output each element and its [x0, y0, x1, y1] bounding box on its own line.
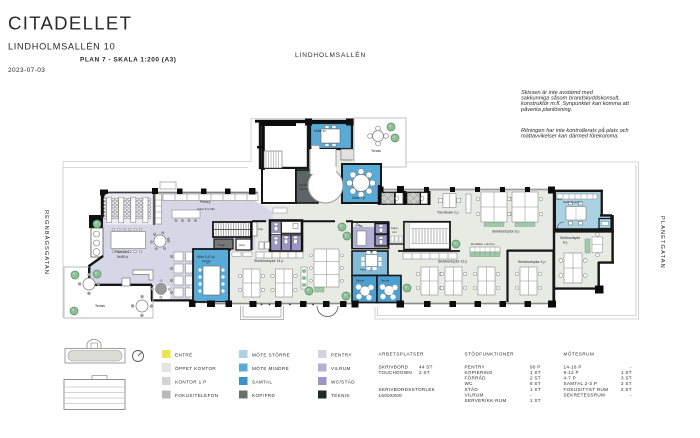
svg-text:Skrivbordsytor 8 p: Skrivbordsytor 8 p: [492, 230, 519, 234]
svg-text:KONTOR 1 P: KONTOR 1 P: [175, 380, 207, 385]
svg-text:mättavvikelser kan därmed före: mättavvikelser kan därmed förekomma.: [521, 134, 619, 140]
svg-text:Vilrum: Vilrum: [355, 224, 362, 228]
svg-text:8 p: 8 p: [563, 241, 568, 245]
svg-text:FOKUS/TYST RUM: FOKUS/TYST RUM: [564, 387, 609, 392]
svg-text:PENTRY: PENTRY: [465, 365, 485, 370]
svg-text:SAMTAL: SAMTAL: [252, 380, 272, 385]
svg-text:Fokus: Fokus: [556, 198, 563, 201]
svg-text:KK-rum: KK-rum: [299, 187, 309, 191]
svg-text:MÖTE STÖRRE: MÖTE STÖRRE: [252, 352, 290, 358]
svg-text:Skrivbordsytor 4 p: Skrivbordsytor 4 p: [518, 260, 545, 264]
svg-text:1 ST: 1 ST: [530, 370, 541, 375]
svg-text:VILRUM: VILRUM: [331, 366, 351, 371]
svg-text:Kop.: Kop.: [258, 227, 264, 231]
svg-text:FÖRRÅD: FÖRRÅD: [465, 375, 487, 381]
svg-text:14-16 P: 14-16 P: [564, 365, 582, 370]
svg-text:Sekretessrum: Sekretessrum: [563, 200, 582, 204]
svg-text:ÖPPET KONTOR: ÖPPET KONTOR: [175, 365, 216, 371]
svg-text:Terass: Terass: [371, 149, 381, 153]
svg-text:Skrivbordsytor 12 p: Skrivbordsytor 12 p: [438, 260, 467, 264]
svg-text:Möte 8-10 p/: Möte 8-10 p/: [197, 255, 215, 259]
svg-text:STÖDFUNKTIONER: STÖDFUNKTIONER: [465, 351, 515, 357]
svg-text:rum: rum: [392, 230, 397, 234]
svg-text:TOUCHDOWN: TOUCHDOWN: [379, 370, 413, 375]
svg-text:MÖTE MINDRE: MÖTE MINDRE: [252, 365, 289, 371]
svg-text:PLAN 7 - SKALA 1:200 (A3): PLAN 7 - SKALA 1:200 (A3): [80, 57, 176, 64]
svg-text:Möte 7 p: Möte 7 p: [352, 196, 365, 200]
svg-text:2 ST: 2 ST: [419, 370, 430, 375]
svg-text:-: -: [630, 365, 632, 370]
svg-text:Terass: Terass: [95, 304, 105, 308]
svg-text:8-12 P: 8-12 P: [564, 370, 579, 375]
svg-text:LINDHOLMSALLÉN 10: LINDHOLMSALLÉN 10: [8, 42, 115, 52]
svg-text:5x/90 p: 5x/90 p: [117, 255, 128, 259]
svg-text:-: -: [530, 392, 532, 397]
svg-text:90 P: 90 P: [530, 365, 541, 370]
svg-text:STÄD: STÄD: [465, 386, 479, 392]
svg-text:1600X800: 1600X800: [379, 393, 402, 398]
svg-text:2 ST: 2 ST: [621, 381, 632, 386]
svg-text:ARBETSPLATSER: ARBETSPLATSER: [379, 352, 425, 357]
svg-text:FOKUS/TELEFON: FOKUS/TELEFON: [175, 393, 219, 398]
svg-text:3 ST: 3 ST: [621, 376, 632, 381]
svg-text:WC: WC: [465, 381, 474, 386]
svg-text:Förråd/: Förråd/: [299, 183, 308, 187]
svg-text:SKRIVBORD: SKRIVBORD: [379, 365, 409, 370]
svg-text:LINDHOLMSALLÉN: LINDHOLMSALLÉN: [295, 50, 366, 59]
svg-text:6 ST: 6 ST: [530, 381, 541, 386]
svg-text:Pentry: Pentry: [200, 200, 211, 204]
svg-text:4-7 P: 4-7 P: [564, 376, 576, 381]
svg-text:påverka planlösning.: påverka planlösning.: [520, 106, 572, 113]
svg-text:REGNBÅGSGATAN: REGNBÅGSGATAN: [43, 210, 50, 275]
svg-text:-: -: [630, 392, 632, 397]
svg-text:SKRIVBORDSSTORLEK: SKRIVBORDSSTORLEK: [379, 387, 436, 392]
svg-text:44 ST: 44 ST: [419, 365, 433, 370]
svg-text:Trapp: Trapp: [218, 243, 226, 247]
svg-text:1 ST: 1 ST: [530, 387, 541, 392]
svg-text:VILRUM: VILRUM: [465, 392, 484, 397]
svg-text:Pausrum: Pausrum: [115, 250, 129, 254]
svg-text:KOPIERING: KOPIERING: [465, 370, 493, 375]
svg-text:Skrivbordsytor: Skrivbordsytor: [560, 236, 581, 240]
svg-text:KOP/FRD: KOP/FRD: [252, 393, 276, 398]
svg-text:TEKNIK: TEKNIK: [331, 393, 351, 398]
svg-text:WC/STÄD: WC/STÄD: [331, 379, 355, 385]
svg-text:SERVER/KK-RUM: SERVER/KK-RUM: [465, 398, 507, 403]
svg-text:SEKRETESSRUM: SEKRETESSRUM: [564, 392, 606, 397]
svg-text:1 ST: 1 ST: [530, 398, 541, 403]
svg-text:2 ST: 2 ST: [621, 387, 632, 392]
svg-text:2 ST: 2 ST: [530, 376, 541, 381]
svg-text:Samtal: Samtal: [381, 279, 389, 283]
svg-text:Samtal: Samtal: [356, 279, 364, 283]
svg-text:MÖTESRUM: MÖTESRUM: [564, 351, 595, 357]
svg-text:SAMTAL 2-3 P: SAMTAL 2-3 P: [564, 381, 598, 386]
svg-text:Pingis: Pingis: [202, 260, 211, 264]
svg-text:Flexibilitet: +4st 24 p: Flexibilitet: +4st 24 p: [471, 242, 495, 246]
svg-text:2023-07-03: 2023-07-03: [8, 67, 45, 74]
svg-text:PENTRY: PENTRY: [331, 353, 352, 358]
svg-text:1 ST: 1 ST: [621, 370, 632, 375]
svg-text:ENTRÉ: ENTRÉ: [175, 352, 193, 358]
svg-text:PLANETGATAN: PLANETGATAN: [659, 216, 665, 269]
svg-text:CITADELLET: CITADELLET: [8, 13, 132, 34]
svg-text:Antal: 8 st (lfk): Antal: 8 st (lfk): [197, 207, 215, 211]
svg-text:Touchdown 2 p: Touchdown 2 p: [437, 211, 459, 215]
svg-text:Skrivbordsytor 14 p: Skrivbordsytor 14 p: [254, 259, 283, 263]
svg-text:Hiss: Hiss: [239, 243, 245, 247]
svg-text:Möte xx: Möte xx: [314, 129, 326, 133]
